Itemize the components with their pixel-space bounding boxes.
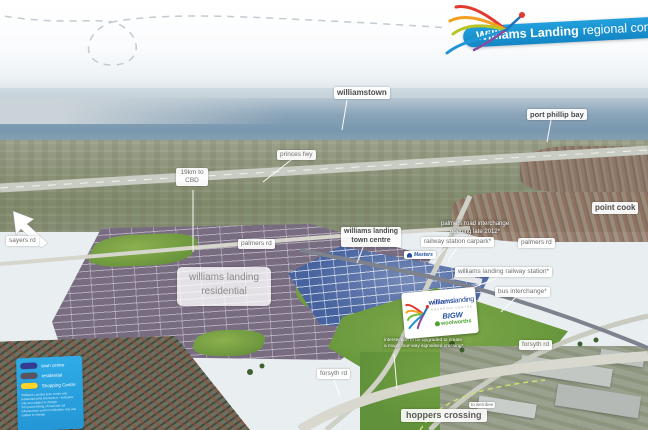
label-forsyth-rd-east: forsyth rd (519, 340, 552, 350)
dragonfly-logo-small-icon (404, 297, 432, 333)
label-residential: williams landing residential (177, 267, 271, 306)
label-palmers-interchange-note: palmers road interchange opening late 20… (438, 220, 512, 237)
masters-store-label: Masters (404, 251, 436, 259)
label-princes-fwy: princes fwy (277, 150, 316, 160)
legend-fineprint: *Williams Landing town centre and reside… (21, 391, 80, 418)
label-to-werribee: to werribee (469, 402, 495, 408)
masters-house-icon (407, 253, 412, 258)
legend-item-residential: residential (20, 371, 78, 380)
label-point-cook: point cook (592, 202, 638, 214)
legend-swatch-shopping-centre (21, 383, 38, 390)
map-overlay (0, 0, 648, 430)
label-bus-interchange: bus interchange* (495, 287, 550, 297)
legend-swatch-residential (20, 373, 37, 380)
label-intersection-note: intersection to be upgraded to create a … (381, 337, 466, 352)
label-hoppers-crossing: hoppers crossing (401, 409, 487, 422)
legend-label-shopping-centre: Shopping Centre (42, 381, 76, 387)
roads (0, 150, 648, 430)
legend-label-town-centre: town centre (41, 362, 64, 368)
woolworths-apple-icon (435, 322, 440, 327)
label-19km-to-cbd: 19km to CBD (176, 168, 208, 186)
woolworths-word: woolworths (441, 318, 472, 327)
label-railway-station-carpark: railway station carpark* (421, 237, 494, 247)
legend-label-residential: residential (41, 372, 62, 378)
legend-item-town-centre: town centre (20, 361, 78, 370)
legend-item-shopping-centre: Shopping Centre (21, 381, 79, 390)
label-town-centre: williams landing town centre (341, 227, 401, 247)
label-palmers-rd-west: palmers rd (238, 239, 275, 249)
map-legend: town centre residential Shopping Centre … (16, 356, 84, 430)
fwy-centerline (0, 150, 648, 188)
label-railway-station: williams landing railway station* (455, 267, 552, 277)
label-palmers-rd-east: palmers rd (518, 238, 555, 248)
banner-suffix-text: regional context (582, 19, 648, 38)
shopping-centre-card: williamslanding SHOPPING CENTRE BIGW woo… (401, 287, 479, 339)
dragonfly-logo-icon (444, 0, 532, 56)
label-forsyth-rd-south: forsyth rd (317, 369, 350, 379)
label-sayers-rd: sayers rd (6, 236, 39, 246)
regional-context-map: Williams Landingregional context william… (0, 0, 648, 430)
flight-path-dashed-line (0, 14, 448, 65)
label-williamstown: williamstown (334, 87, 390, 99)
label-port-phillip-bay: port phillip bay (527, 109, 587, 120)
masters-text: Masters (414, 252, 433, 258)
legend-swatch-town-centre (20, 363, 37, 370)
